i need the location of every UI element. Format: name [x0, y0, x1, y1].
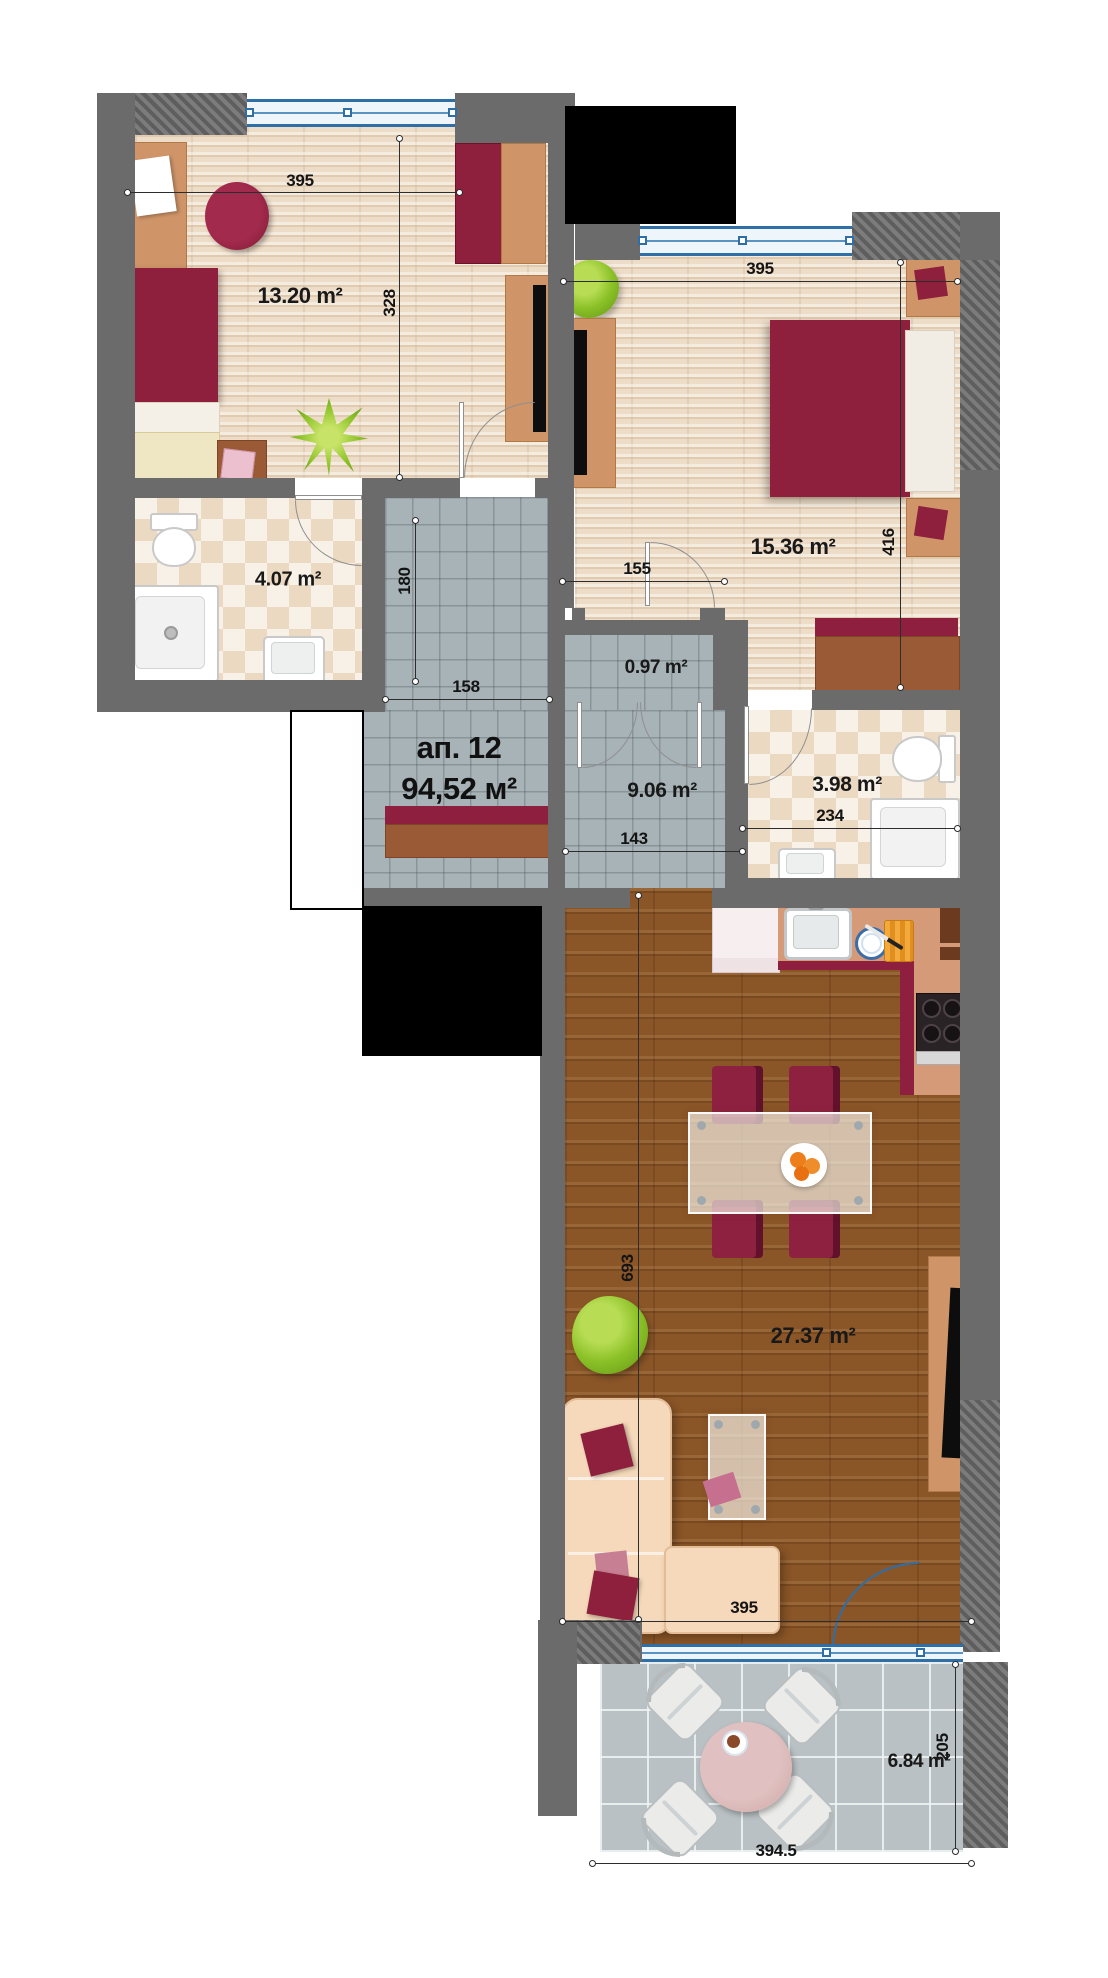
wall-bathroom-1-right [362, 497, 385, 712]
dim-line-hallway-width [565, 851, 743, 852]
wall-living-left [540, 908, 565, 1650]
dim-terrace-width: 394.5 [755, 1841, 796, 1861]
dim-bedroom-2-door: 155 [623, 559, 650, 579]
entry-bench-top [385, 806, 555, 824]
cushion-2a [914, 266, 948, 300]
apartment-name: ап. 12 [417, 730, 502, 766]
wall-closet-top [563, 620, 713, 635]
fridge [712, 903, 780, 973]
wall-bathroom-1-bottom [97, 680, 385, 712]
closet-area-label: 0.97 m² [625, 657, 688, 679]
kitchen-sink-basin [793, 915, 839, 949]
dim-line-bedroom-2-door [562, 581, 725, 582]
wall-left [97, 93, 135, 712]
cooktop-panel [916, 1051, 966, 1065]
wall-bathroom-2-top [812, 690, 963, 710]
dim-bedroom-2-width: 395 [746, 259, 773, 279]
dim-line-bathroom-2-width [742, 828, 958, 829]
wall-terrace-left [538, 1620, 577, 1816]
dining-table [688, 1112, 872, 1214]
floor-plan: 395 328 395 416 155 180 158 143 234 693 … [0, 0, 1108, 1978]
window-handle [245, 108, 254, 117]
dim-hallway-width: 143 [620, 829, 647, 849]
window-handle [845, 236, 854, 245]
toilet-2-bowl [892, 736, 942, 782]
wall-corridor-left [548, 478, 565, 910]
wall-bedroom-1-bottom-c [535, 478, 548, 498]
dim-bedroom-1-depth: 328 [380, 289, 400, 316]
wall-bedroom-1-bottom-a [135, 478, 295, 498]
dim-corridor-width: 180 [395, 567, 415, 594]
window-bedroom-1 [247, 99, 455, 127]
sofa-pillow-3 [587, 1570, 640, 1621]
kitchen-shelf-a [940, 905, 960, 943]
masked-area-left [362, 906, 542, 1056]
masked-area-top [565, 106, 736, 224]
dim-line-terrace-width [592, 1863, 972, 1864]
wall-entry-bottom-b [712, 888, 963, 908]
burner-3 [922, 1024, 941, 1043]
toilet-1-bowl [152, 527, 196, 567]
tv-bedroom-2 [574, 330, 587, 475]
door-bedroom-1-leaf [459, 402, 464, 478]
shower-1-drain [164, 626, 178, 640]
closet-door-right-leaf [697, 702, 702, 768]
bed-2-pillows [905, 330, 955, 492]
pink-box [220, 448, 255, 482]
wall-terrace-right [963, 1662, 1008, 1848]
apartment-total-area: 94,52 м² [401, 771, 516, 807]
wall-bedroom-1-bottom-b [362, 478, 460, 498]
bedroom-2-area-label: 15.36 m² [751, 534, 836, 560]
dim-line-living-depth [638, 895, 639, 1620]
living-area-label: 27.37 m² [771, 1323, 856, 1349]
dim-bedroom-1-width: 395 [286, 171, 313, 191]
window-handle [448, 108, 457, 117]
bathroom-1-area-label: 4.07 m² [255, 569, 321, 592]
burner-1 [922, 999, 941, 1018]
paper-sheet [129, 155, 176, 216]
sink-2-basin [786, 853, 824, 874]
bed-1-blanket [125, 268, 218, 402]
dim-line-corridor-length [385, 699, 550, 700]
bed-2-blanket [770, 320, 910, 497]
dim-bedroom-2-depth: 416 [879, 528, 899, 555]
dim-line-bedroom-2-depth [900, 262, 901, 688]
dim-line-terrace-depth [955, 1664, 956, 1852]
terrace-area-label: 6.84 m² [888, 1751, 951, 1773]
sink-1-basin [271, 642, 315, 674]
dim-line-bedroom-2-width [563, 281, 958, 282]
wall-terrace-hatch [577, 1620, 640, 1664]
window-frame [642, 1652, 963, 1654]
wall-entry-bottom-a [362, 888, 630, 908]
neighbour-cutout [290, 710, 364, 910]
window-handle [822, 1648, 831, 1657]
window-handle [638, 236, 647, 245]
wall-right-outer-hatch-top [960, 260, 1000, 470]
wall-bedroom-2-top-left [575, 224, 640, 260]
bathroom-2-area-label: 3.98 m² [812, 773, 882, 797]
dim-living-depth: 693 [618, 1254, 638, 1281]
bed-1-foot [125, 432, 220, 480]
sofa-seat-line-1 [568, 1477, 664, 1480]
dim-line-bedroom-1-width [127, 192, 460, 193]
shower-2-tray [880, 807, 946, 867]
dresser-top [815, 618, 958, 636]
coffee-cup-inner [727, 1735, 740, 1748]
wall-bedroom-1-top-right [455, 93, 575, 143]
window-bedroom-2 [640, 226, 852, 256]
counter-right-edge-red [900, 961, 914, 1095]
kitchen-shelf-b [940, 947, 960, 960]
dim-line-living-width [562, 1621, 972, 1622]
dim-corridor-length: 158 [452, 677, 479, 697]
bedroom-1-area-label: 13.20 m² [258, 283, 343, 309]
window-handle [916, 1648, 925, 1657]
window-handle [343, 108, 352, 117]
orange-3 [794, 1166, 809, 1181]
wall-right-outer-hatch-bottom [960, 1400, 1000, 1652]
counter-edge-red [778, 961, 914, 970]
wardrobe-left [455, 143, 503, 264]
dim-living-width: 395 [730, 1598, 757, 1618]
cushion-2b [914, 506, 948, 540]
dim-bathroom-2-width: 234 [816, 806, 843, 826]
entry-bench-body [385, 824, 557, 858]
window-handle [738, 236, 747, 245]
dresser-body [815, 636, 960, 694]
wardrobe-right [501, 143, 546, 264]
dim-line-corridor-width [415, 520, 416, 682]
bed-1-sheet [125, 402, 220, 434]
window-living-terrace [642, 1644, 963, 1662]
hallway-area-label: 9.06 m² [627, 779, 697, 803]
